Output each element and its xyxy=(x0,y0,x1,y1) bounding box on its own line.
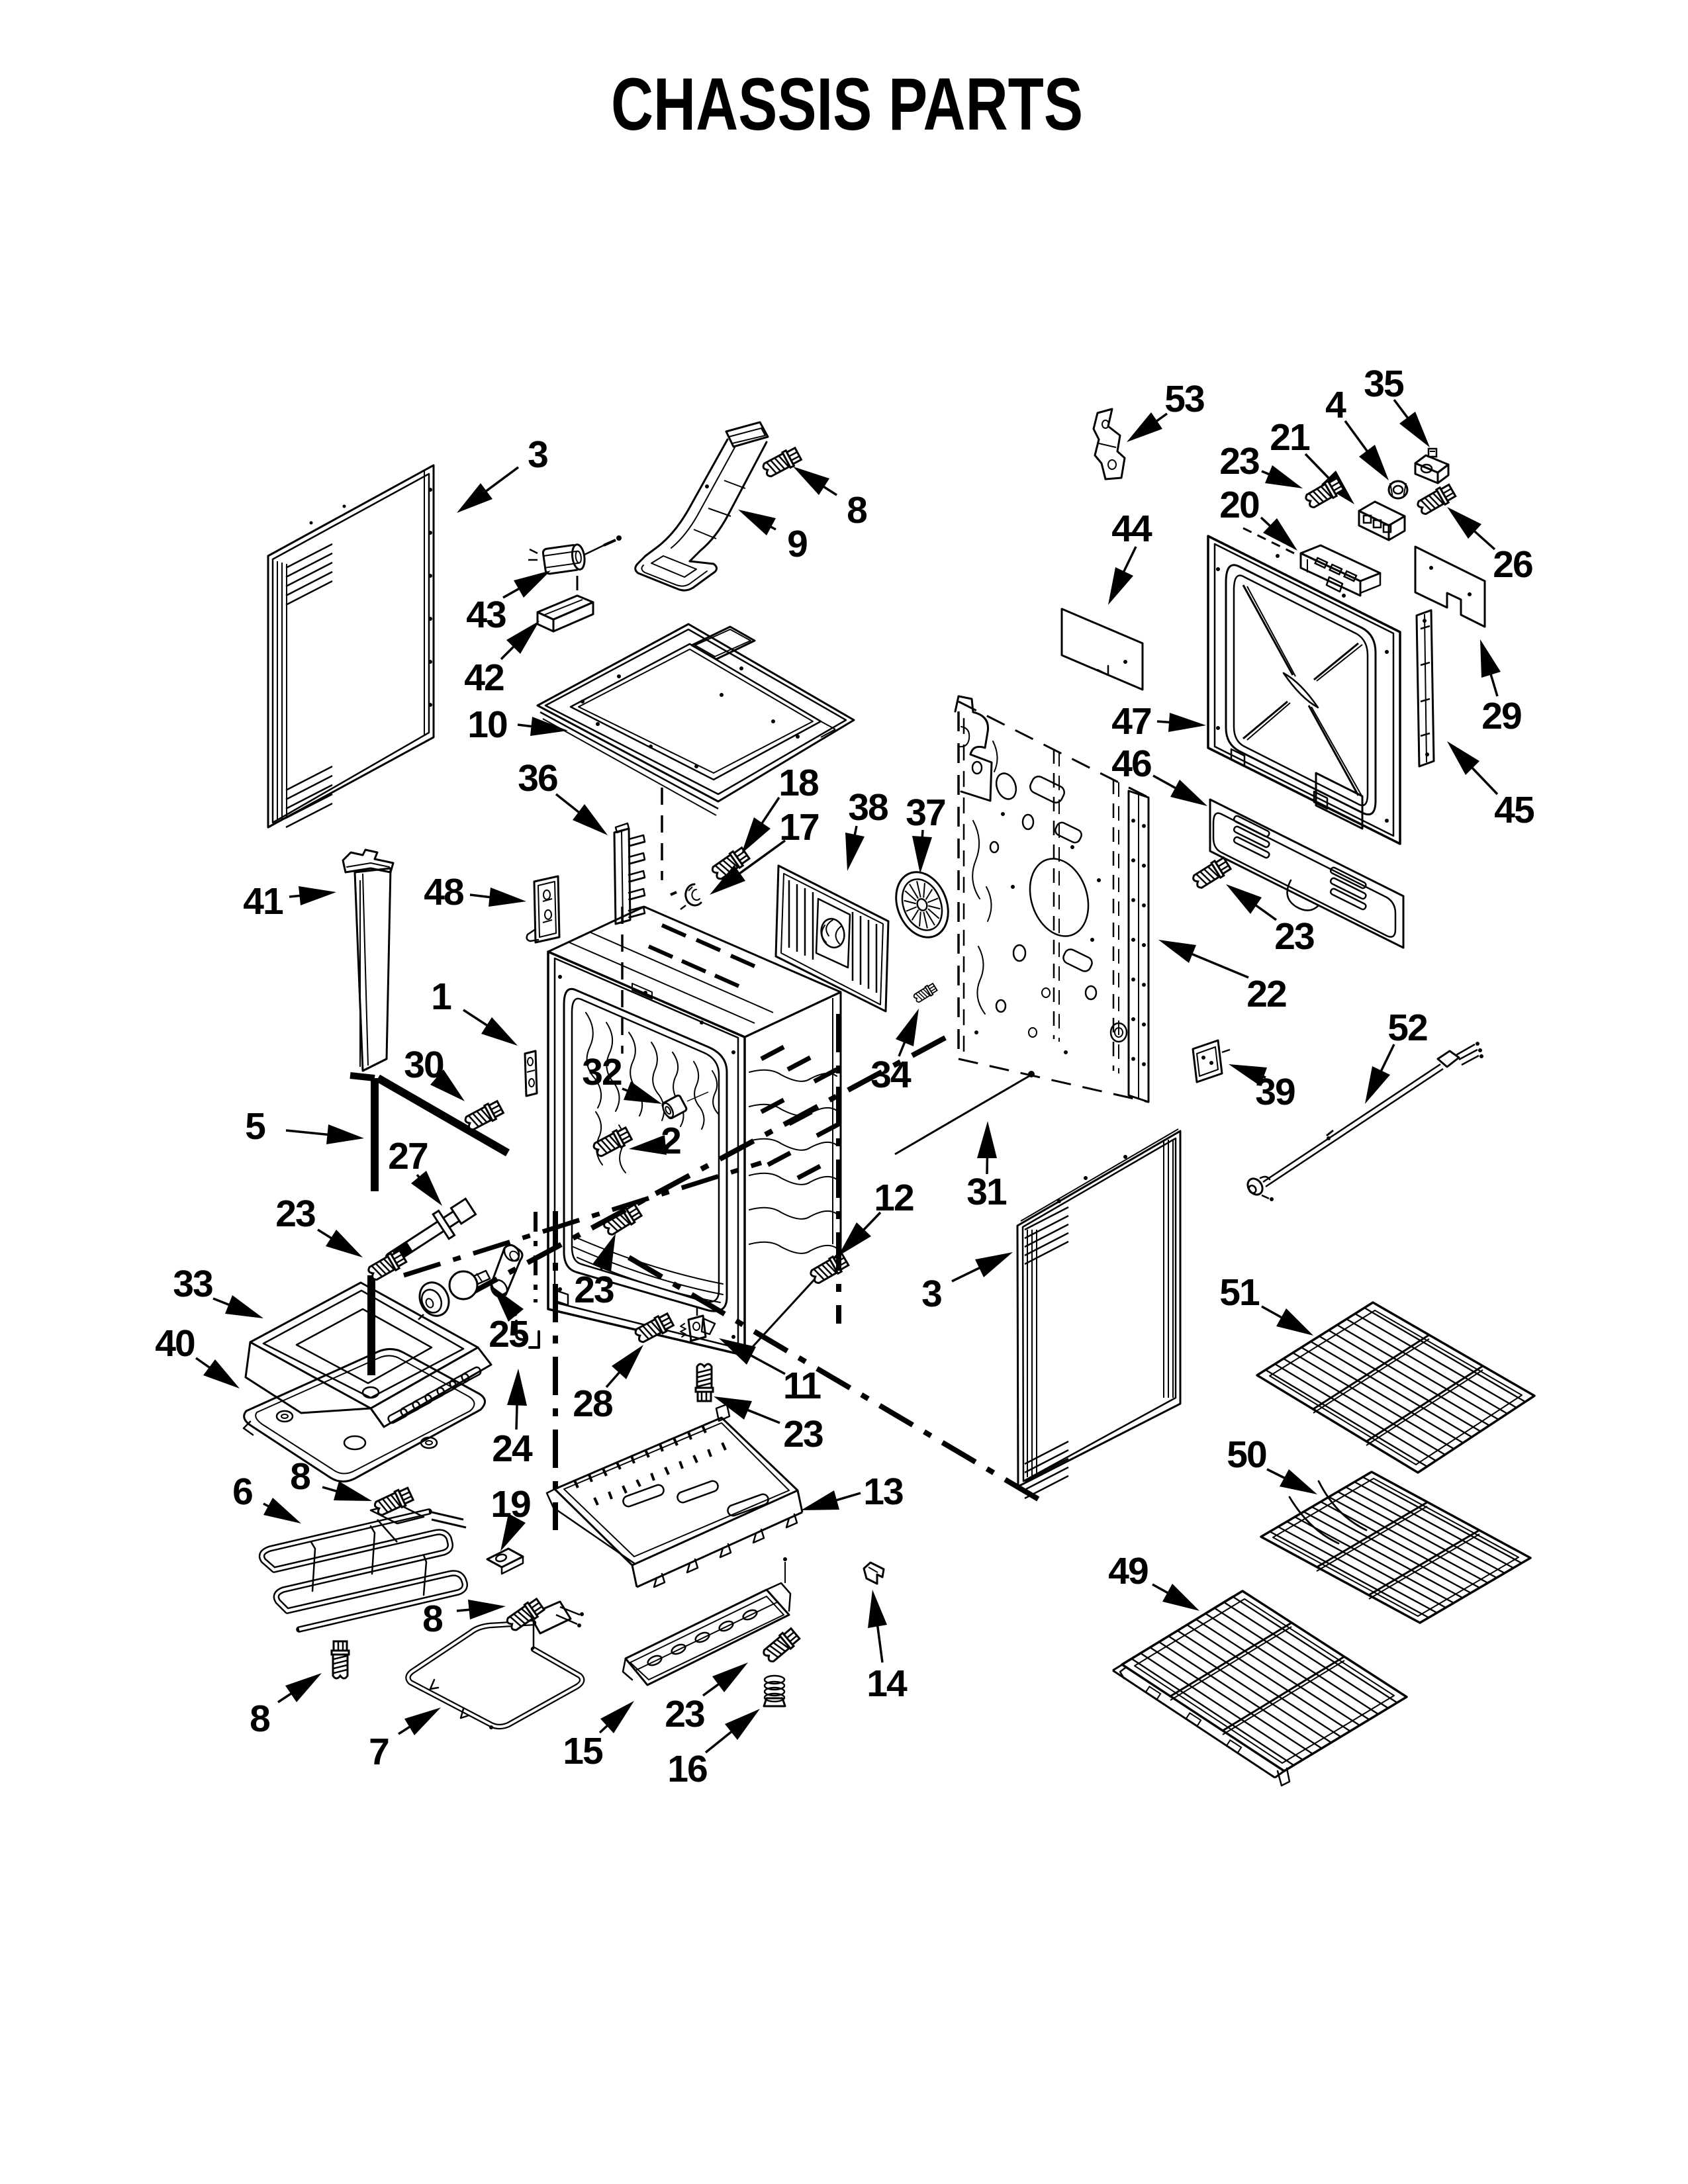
svg-text:44: 44 xyxy=(1111,508,1152,550)
svg-text:46: 46 xyxy=(1111,743,1151,785)
svg-text:37: 37 xyxy=(906,792,945,834)
svg-text:42: 42 xyxy=(464,657,504,699)
svg-text:4: 4 xyxy=(1325,384,1346,426)
svg-text:38: 38 xyxy=(848,786,888,829)
svg-text:28: 28 xyxy=(573,1383,612,1425)
svg-text:43: 43 xyxy=(466,594,506,636)
svg-text:8: 8 xyxy=(422,1598,442,1640)
svg-text:40: 40 xyxy=(155,1322,195,1365)
svg-text:22: 22 xyxy=(1246,973,1286,1015)
svg-text:52: 52 xyxy=(1387,1007,1427,1049)
svg-text:1: 1 xyxy=(431,976,451,1018)
svg-text:23: 23 xyxy=(574,1269,614,1311)
svg-text:53: 53 xyxy=(1164,378,1204,420)
svg-text:23: 23 xyxy=(275,1193,315,1235)
svg-text:8: 8 xyxy=(290,1455,310,1498)
svg-text:11: 11 xyxy=(783,1365,821,1407)
svg-text:27: 27 xyxy=(388,1135,428,1177)
svg-text:9: 9 xyxy=(787,523,807,565)
svg-text:15: 15 xyxy=(563,1730,603,1772)
svg-text:23: 23 xyxy=(783,1413,823,1455)
svg-text:49: 49 xyxy=(1108,1550,1148,1592)
svg-text:23: 23 xyxy=(665,1693,704,1735)
svg-text:33: 33 xyxy=(173,1263,212,1305)
svg-text:16: 16 xyxy=(667,1748,707,1790)
svg-text:48: 48 xyxy=(424,871,463,913)
svg-text:51: 51 xyxy=(1219,1271,1260,1314)
svg-text:7: 7 xyxy=(369,1731,389,1773)
svg-text:6: 6 xyxy=(232,1471,252,1513)
svg-text:10: 10 xyxy=(467,704,507,746)
svg-text:13: 13 xyxy=(863,1471,903,1513)
svg-text:20: 20 xyxy=(1219,484,1259,526)
svg-text:3: 3 xyxy=(528,433,547,476)
svg-text:23: 23 xyxy=(1274,915,1314,958)
svg-text:CHASSIS PARTS: CHASSIS PARTS xyxy=(611,63,1083,146)
svg-text:26: 26 xyxy=(1493,543,1532,586)
svg-text:41: 41 xyxy=(243,880,283,923)
svg-text:8: 8 xyxy=(250,1698,269,1740)
svg-text:31: 31 xyxy=(966,1171,1007,1213)
svg-text:24: 24 xyxy=(492,1428,533,1470)
svg-text:3: 3 xyxy=(921,1273,941,1315)
svg-text:18: 18 xyxy=(778,762,818,804)
svg-text:29: 29 xyxy=(1481,695,1521,737)
svg-text:50: 50 xyxy=(1227,1433,1266,1476)
svg-text:8: 8 xyxy=(847,489,867,531)
svg-text:21: 21 xyxy=(1270,416,1310,459)
svg-text:5: 5 xyxy=(245,1105,265,1148)
svg-text:32: 32 xyxy=(582,1051,622,1093)
svg-text:14: 14 xyxy=(867,1662,908,1705)
svg-text:45: 45 xyxy=(1494,789,1534,831)
svg-text:23: 23 xyxy=(1219,440,1259,482)
svg-text:35: 35 xyxy=(1364,363,1404,405)
svg-text:17: 17 xyxy=(779,806,819,848)
svg-text:47: 47 xyxy=(1111,700,1151,743)
svg-text:36: 36 xyxy=(518,757,557,799)
